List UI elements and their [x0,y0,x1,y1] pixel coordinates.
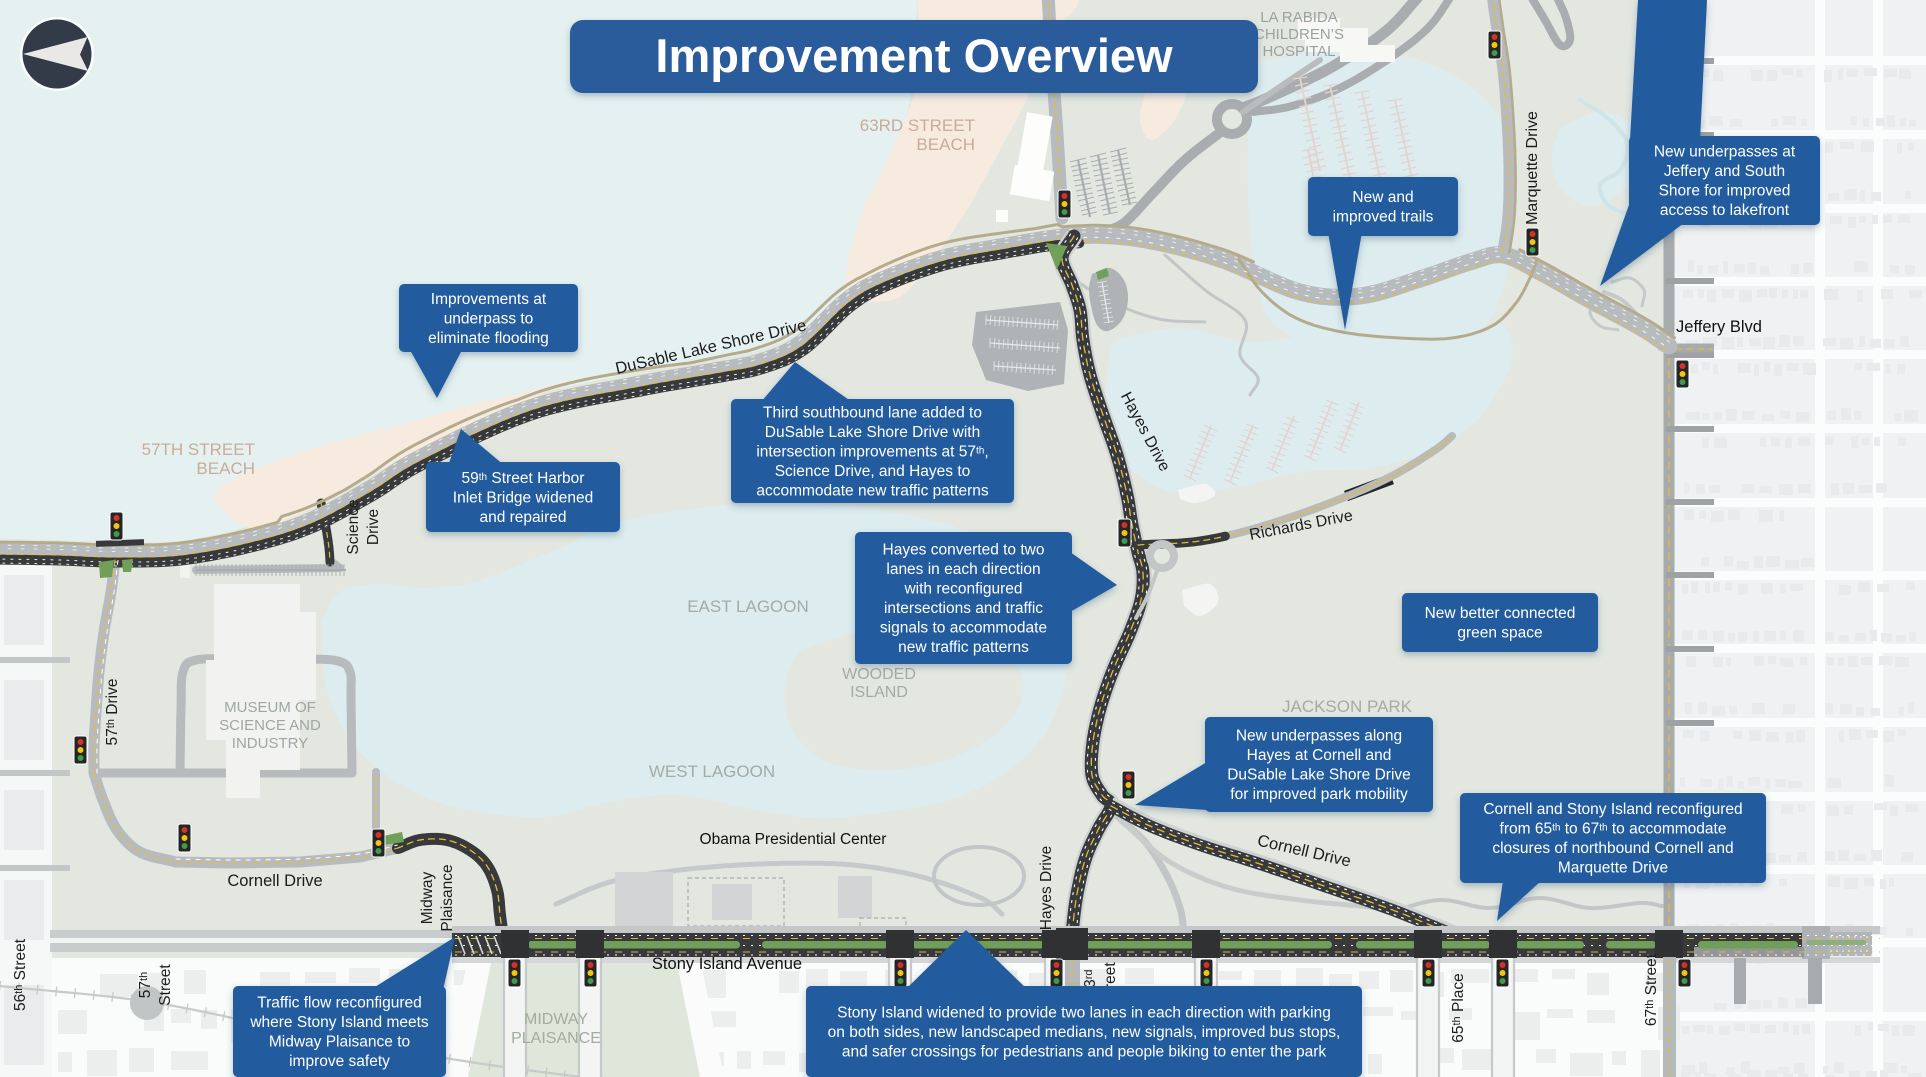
svg-text:Shore for improved: Shore for improved [1659,183,1791,200]
svg-text:improved trails: improved trails [1333,209,1434,226]
svg-text:BEACH: BEACH [916,135,975,154]
svg-text:Hayes converted to two: Hayes converted to two [883,542,1045,559]
svg-text:intersection improvements at 5: intersection improvements at 57th, [756,443,988,460]
svg-text:where Stony Island meets: where Stony Island meets [249,1014,429,1031]
svg-text:and safer crossings for pedest: and safer crossings for pedestrians and … [842,1043,1326,1060]
svg-text:MUSEUM OF: MUSEUM OF [224,699,316,716]
svg-text:Stony Island Avenue: Stony Island Avenue [652,955,802,973]
svg-text:access to lakefront: access to lakefront [1660,202,1790,219]
svg-text:New underpasses along: New underpasses along [1236,728,1402,745]
svg-text:underpass to: underpass to [444,310,534,327]
svg-text:WOODED: WOODED [842,666,916,683]
svg-text:lanes in each direction: lanes in each direction [886,561,1040,578]
svg-text:Third southbound lane added to: Third southbound lane added to [763,404,982,421]
svg-text:ISLAND: ISLAND [850,684,908,701]
svg-text:intersections and traffic: intersections and traffic [884,600,1043,617]
svg-text:Improvements at: Improvements at [431,291,547,308]
svg-text:Midway: Midway [419,871,436,924]
svg-text:with reconfigured: with reconfigured [903,581,1022,598]
svg-text:Cornell and Stony Island recon: Cornell and Stony Island reconfigured [1483,801,1742,818]
svg-text:New and: New and [1352,189,1413,206]
svg-text:BEACH: BEACH [196,459,255,478]
svg-text:MIDWAY: MIDWAY [524,1011,588,1028]
svg-text:63RD STREET: 63RD STREET [860,116,975,135]
svg-text:Improvement Overview: Improvement Overview [655,29,1173,82]
svg-text:Science: Science [345,499,362,554]
svg-text:Hayes at Cornell and: Hayes at Cornell and [1247,747,1392,764]
svg-text:57TH STREET: 57TH STREET [142,440,255,459]
svg-text:and repaired: and repaired [479,509,566,526]
svg-text:Science Drive, and Hayes to: Science Drive, and Hayes to [775,463,971,480]
svg-text:CHILDREN’S: CHILDREN’S [1254,26,1344,43]
svg-text:EAST LAGOON: EAST LAGOON [687,597,809,616]
svg-text:PLAISANCE: PLAISANCE [511,1030,601,1047]
svg-text:new traffic patterns: new traffic patterns [898,639,1029,656]
svg-text:JACKSON PARK: JACKSON PARK [1282,697,1413,716]
svg-text:closures of northbound Cornell: closures of northbound Cornell and [1492,840,1733,857]
svg-text:New underpasses at: New underpasses at [1654,144,1796,161]
svg-text:improve safety: improve safety [289,1053,390,1070]
svg-text:DuSable Lake Shore Drive: DuSable Lake Shore Drive [1227,767,1411,784]
svg-text:Hayes Drive: Hayes Drive [1038,846,1055,930]
svg-text:HOSPITAL: HOSPITAL [1262,43,1335,60]
svg-text:Jeffery and South: Jeffery and South [1664,163,1785,180]
svg-text:accommodate new traffic patter: accommodate new traffic patterns [756,482,989,499]
svg-text:WEST LAGOON: WEST LAGOON [649,762,775,781]
svg-text:for improved park mobility: for improved park mobility [1230,786,1408,803]
svg-text:65th Place: 65th Place [1450,973,1467,1043]
svg-text:56th Street: 56th Street [12,938,29,1011]
svg-text:Traffic flow reconfigured: Traffic flow reconfigured [257,995,422,1012]
svg-text:57th Drive: 57th Drive [104,679,121,746]
svg-text:Obama Presidential Center: Obama Presidential Center [700,831,887,848]
svg-text:SCIENCE AND: SCIENCE AND [219,717,321,734]
svg-text:eliminate flooding: eliminate flooding [428,330,549,347]
svg-text:signals to accommodate: signals to accommodate [880,620,1047,637]
svg-text:green space: green space [1457,625,1542,642]
svg-text:Street: Street [157,964,174,1006]
svg-text:DuSable Lake Shore Drive with: DuSable Lake Shore Drive with [765,424,980,441]
svg-text:INDUSTRY: INDUSTRY [232,735,308,752]
svg-text:Stony Island widened to provid: Stony Island widened to provide two lane… [837,1004,1331,1021]
svg-text:Cornell Drive: Cornell Drive [227,872,322,890]
svg-text:67th Street: 67th Street [1643,953,1660,1026]
svg-text:LA RABIDA: LA RABIDA [1260,9,1338,26]
svg-text:from 65th to 67th to accommoda: from 65th to 67th to accommodate [1500,821,1727,838]
svg-text:Midway Plaisance to: Midway Plaisance to [269,1034,410,1051]
svg-text:Jeffery Blvd: Jeffery Blvd [1676,318,1762,336]
svg-text:Inlet Bridge widened: Inlet Bridge widened [453,489,593,506]
svg-text:New better connected: New better connected [1425,605,1576,622]
svg-text:on both sides, new landscaped: on both sides, new landscaped medians, n… [828,1024,1341,1041]
svg-text:Plaisance: Plaisance [439,864,456,931]
svg-text:Marquette Drive: Marquette Drive [1558,860,1668,877]
svg-text:Marquette Drive: Marquette Drive [1524,111,1541,225]
svg-text:Drive: Drive [365,509,382,545]
